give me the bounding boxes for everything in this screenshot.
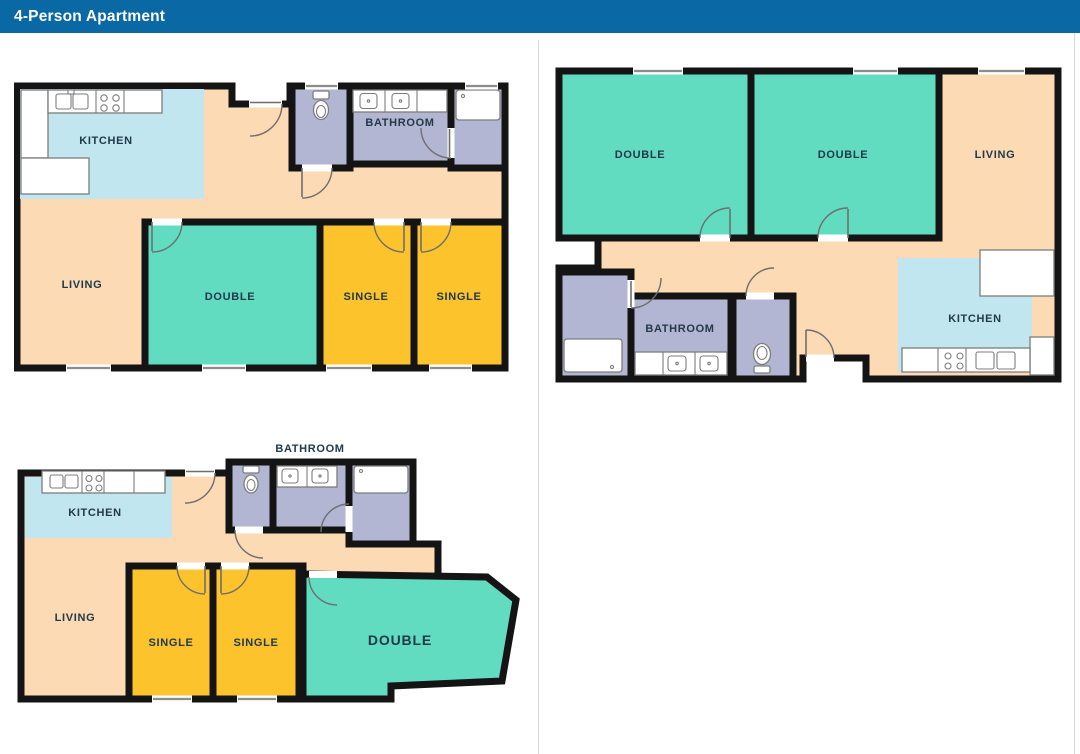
- plan3-room-single-1: [129, 566, 213, 699]
- floor-plan-2: DOUBLE DOUBLE LIVING BATHROOM KITCHEN: [552, 64, 1066, 386]
- page-right-edge: [1074, 33, 1075, 754]
- room-label-single: SINGLE: [234, 637, 279, 649]
- room-label-living: LIVING: [62, 279, 103, 291]
- room-label-bathroom: BATHROOM: [645, 323, 714, 335]
- room-label-single: SINGLE: [344, 291, 389, 303]
- room-label-bathroom: BATHROOM: [275, 443, 344, 455]
- floor-plan-1: KITCHEN BATHROOM LIVING DOUBLE SINGLE SI…: [14, 78, 510, 374]
- column-divider: [538, 40, 539, 754]
- room-label-single: SINGLE: [437, 291, 482, 303]
- shower-tray-icon: [564, 339, 622, 372]
- counter-icon: [21, 90, 48, 158]
- floor-plan-3: BATHROOM KITCHEN LIVING SINGLE SINGLE DO…: [14, 438, 530, 720]
- room-label-kitchen: KITCHEN: [79, 135, 133, 147]
- counter-icon: [21, 158, 89, 194]
- room-label-single: SINGLE: [149, 637, 194, 649]
- page: 4-Person Apartment: [0, 0, 1080, 754]
- shower-tray-icon: [456, 90, 500, 120]
- toilet-icon: [243, 466, 259, 493]
- room-label-living: LIVING: [975, 149, 1016, 161]
- room-label-kitchen: KITCHEN: [948, 313, 1002, 325]
- room-label-double: DOUBLE: [368, 632, 432, 648]
- room-label-double: DOUBLE: [818, 149, 868, 161]
- room-label-double: DOUBLE: [615, 149, 665, 161]
- room-label-kitchen: KITCHEN: [68, 507, 122, 519]
- room-label-double: DOUBLE: [205, 291, 255, 303]
- toilet-icon: [754, 344, 771, 374]
- room-label-living: LIVING: [55, 612, 96, 624]
- plan3-room-single-2: [213, 566, 299, 699]
- counter-icon: [1030, 337, 1054, 375]
- page-title: 4-Person Apartment: [0, 8, 165, 26]
- toilet-icon: [313, 91, 329, 120]
- title-bar: 4-Person Apartment: [0, 0, 1080, 33]
- room-label-bathroom: BATHROOM: [365, 117, 434, 129]
- shower-tray-icon: [354, 466, 408, 493]
- counter-icon: [980, 250, 1054, 296]
